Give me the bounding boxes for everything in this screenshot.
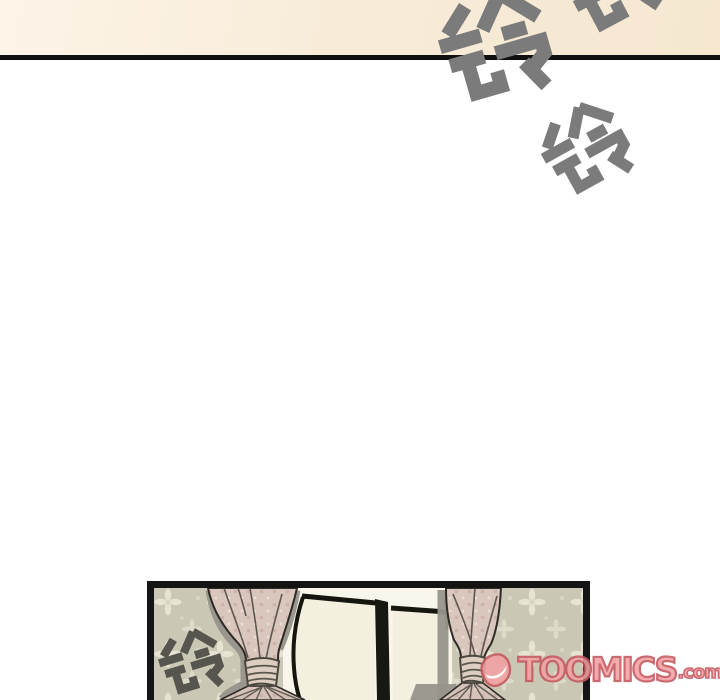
sfx-ring-3 xyxy=(523,89,648,214)
panel-gutter-line xyxy=(0,55,720,60)
sfx-ring-2 xyxy=(422,0,568,124)
watermark-suffix: .com xyxy=(677,648,720,692)
comic-page: TOOMICS .com xyxy=(0,0,720,700)
toomics-watermark: TOOMICS .com xyxy=(477,648,720,692)
watermark-brand: TOOMICS xyxy=(518,651,676,689)
smile-d-icon xyxy=(477,651,515,689)
